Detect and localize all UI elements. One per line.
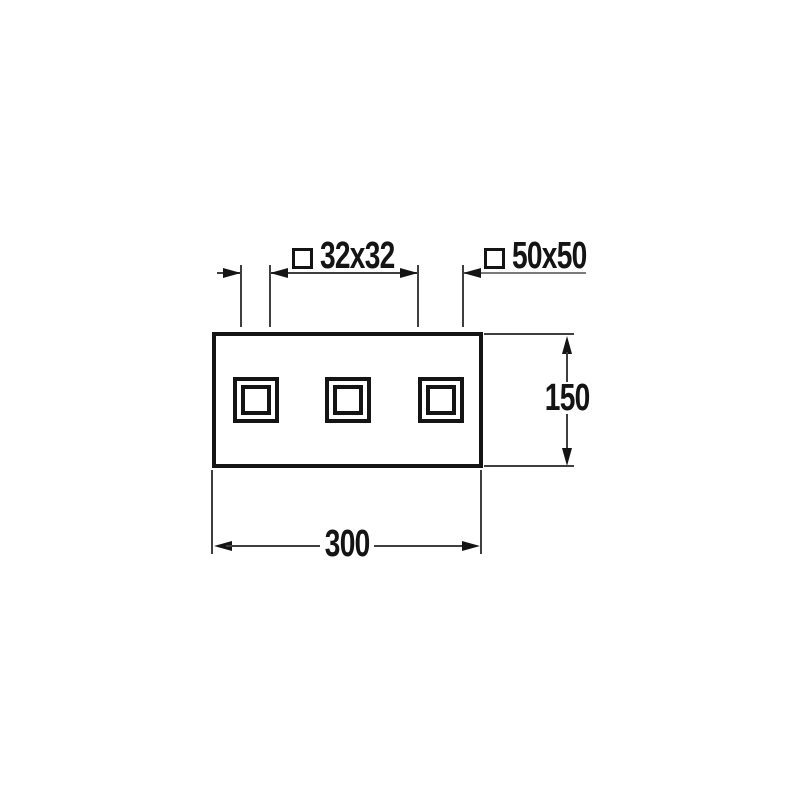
dimension-line-tail-right	[463, 272, 586, 274]
square-opening-3-outer	[418, 377, 464, 423]
arrowhead-left-icon	[270, 268, 288, 278]
dimension-line-width-right-segment	[374, 545, 468, 547]
dimension-line-height-lower	[566, 414, 568, 449]
square-opening-1-outer	[233, 377, 279, 423]
height-dimension-value: 150	[545, 384, 589, 412]
extension-line-outer-square-right	[462, 265, 464, 327]
width-dimension-value: 300	[325, 530, 369, 558]
outer-square-size-text: 50x50	[512, 242, 586, 270]
square-opening-3-inner	[426, 385, 456, 415]
square-opening-1-inner	[241, 385, 271, 415]
arrowhead-right-icon	[462, 541, 480, 551]
square-symbol-icon	[292, 248, 313, 269]
inner-square-size-text: 32x32	[320, 242, 394, 270]
square-opening-2-outer	[325, 377, 371, 423]
arrowhead-right-icon	[400, 268, 418, 278]
arrowhead-down-icon	[562, 448, 572, 466]
square-symbol-icon	[484, 248, 505, 269]
arrowhead-left-icon	[463, 268, 481, 278]
dimension-line-width-left-segment	[226, 545, 320, 547]
extension-line-width-left	[211, 470, 213, 554]
inner-square-dimension-label: 32x32	[292, 242, 421, 270]
extension-line-height-bottom	[484, 465, 574, 467]
extension-line-width-right	[480, 470, 482, 554]
extension-line-outer-square-left	[417, 265, 419, 327]
extension-line-height-top	[484, 333, 574, 335]
extension-line-inner-square-left	[240, 265, 242, 327]
dimension-line-32	[270, 272, 418, 274]
outer-square-dimension-label: 50x50	[484, 242, 613, 270]
square-opening-2-inner	[333, 385, 363, 415]
technical-dimension-drawing: 32x32 50x50 150 300	[0, 0, 800, 800]
extension-line-inner-square-right	[269, 265, 271, 327]
arrowhead-right-icon	[223, 268, 241, 278]
